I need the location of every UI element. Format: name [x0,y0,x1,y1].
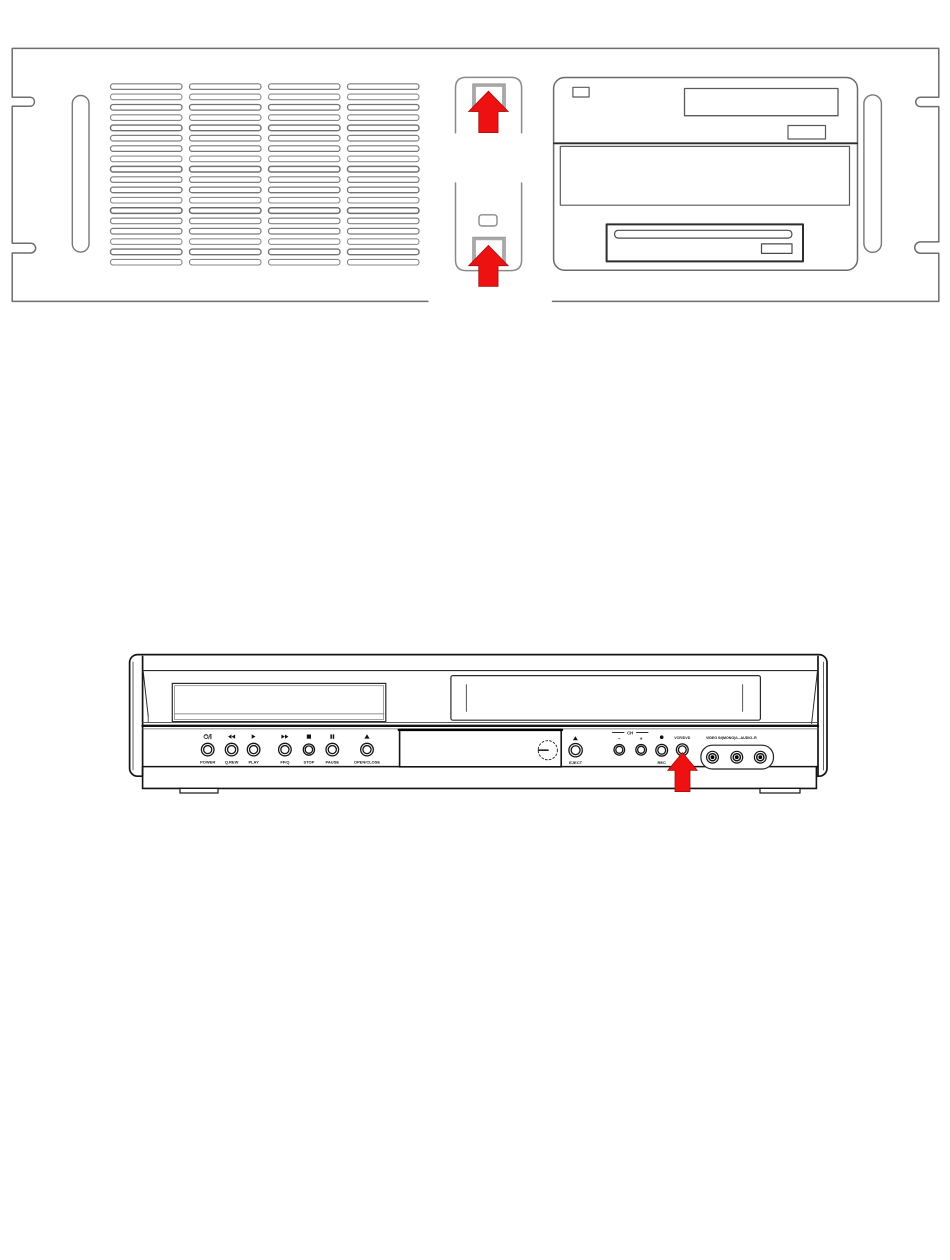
svg-text:VCR/DVD: VCR/DVD [674,736,691,740]
svg-text:CH: CH [627,730,633,735]
svg-text:OPEN/CLOSE: OPEN/CLOSE [354,759,381,764]
svg-text:−: − [618,736,621,742]
svg-text:PAUSE: PAUSE [326,759,340,764]
svg-text:STOP: STOP [303,759,314,764]
svg-text:EJECT: EJECT [569,760,582,765]
svg-text:POWER: POWER [200,759,215,764]
svg-text:REC: REC [657,760,666,765]
svg-text:+: + [640,736,643,742]
svg-text:Q.REW: Q.REW [225,759,239,764]
svg-text:FF/Q: FF/Q [280,759,289,764]
svg-text:PLAY: PLAY [248,759,259,764]
svg-text:VIDEO IN(MONO)/L–AUDIO–R: VIDEO IN(MONO)/L–AUDIO–R [706,736,757,740]
